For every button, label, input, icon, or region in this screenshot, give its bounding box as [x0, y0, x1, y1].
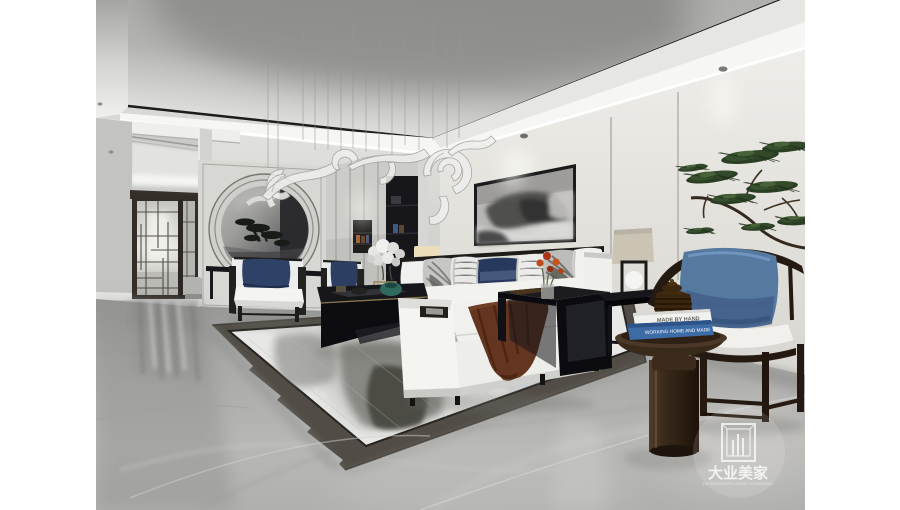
- svg-text:大业美家: 大业美家: [708, 464, 768, 482]
- svg-text:DAYESHANGPIN HOME FURNISHING: DAYESHANGPIN HOME FURNISHING: [703, 481, 774, 486]
